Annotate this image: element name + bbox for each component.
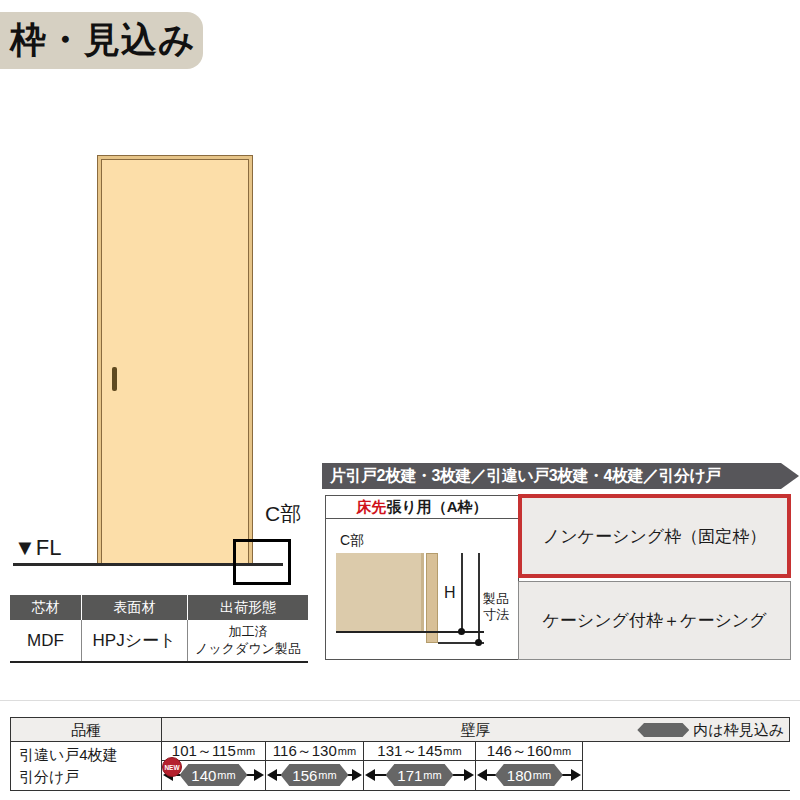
frame-depth-legend: 内は枠見込み	[637, 718, 784, 742]
arrow-left-icon	[267, 769, 277, 781]
page-title-badge: 枠・見込み	[0, 12, 203, 69]
frame-depth-badge: 156mm	[281, 764, 349, 786]
frame-depth-legend-hexagon-icon	[637, 723, 689, 737]
arrow-right-icon	[571, 769, 581, 781]
diagram-wall-section	[336, 553, 424, 632]
dimension-line-h	[461, 553, 463, 632]
header-shipping-form: 出荷形態	[188, 595, 308, 620]
floor-first-frame-cell: 床先張り用（A枠） C部 H 製品 寸法	[325, 495, 519, 660]
core-material-value: MDF	[10, 620, 82, 661]
arrow-right-icon	[464, 769, 474, 781]
c-part-detail-rect	[233, 539, 291, 585]
option-noncasing-frame: ノンケーシング枠（固定枠）	[518, 494, 791, 578]
product-dimension-label: 製品 寸法	[483, 591, 509, 624]
frame-depth-cell: 156mm	[266, 761, 364, 790]
frame-depth-badge: 180mm	[495, 764, 563, 786]
door-handle	[112, 367, 117, 391]
dimension-line-product	[478, 553, 480, 643]
frame-depth-badge: 140mm	[180, 764, 248, 786]
floor-first-highlight: 床先	[356, 498, 386, 517]
frame-depth-cell: 171mm	[364, 761, 476, 790]
floor-level-label: ▼FL	[14, 535, 61, 561]
header-surface-material: 表面材	[82, 595, 188, 620]
arrow-right-icon	[254, 769, 264, 781]
arrow-left-icon	[477, 769, 487, 781]
height-dimension-label: H	[444, 584, 456, 602]
arrow-left-icon	[365, 769, 375, 781]
materials-table-row: MDF HPJシート 加工済 ノックダウン製品	[10, 620, 308, 661]
section-divider	[0, 700, 800, 701]
surface-material-value: HPJシート	[82, 620, 188, 661]
materials-table: 芯材 表面材 出荷形態 MDF HPJシート 加工済 ノックダウン製品	[10, 595, 308, 663]
header-core-material: 芯材	[10, 595, 82, 620]
arrow-right-icon	[352, 769, 362, 781]
diagram-frame-jamb	[426, 553, 438, 643]
wall-range-cell: 146～160mm	[476, 742, 583, 761]
dimension-endpoint-dot-product	[475, 639, 482, 646]
spec-table-header-row: 品種 壁厚 内は枠見込み	[11, 718, 789, 742]
materials-table-header: 芯材 表面材 出荷形態	[10, 595, 308, 620]
product-type-header: 品種	[11, 718, 162, 742]
door-elevation	[97, 155, 253, 564]
floor-first-frame-header: 床先張り用（A枠）	[326, 496, 518, 519]
frame-depth-cell: 180mm	[476, 761, 583, 790]
wall-range-cell: 131～145mm	[364, 742, 476, 761]
wall-range-cell: 116～130mm	[266, 742, 364, 761]
option-noncasing-label: ノンケーシング枠（固定枠）	[543, 525, 766, 548]
dimension-endpoint-dot-h	[458, 628, 465, 635]
page-title: 枠・見込み	[10, 16, 196, 65]
wall-thickness-table: 品種 壁厚 内は枠見込み 引違い戸4枚建 引分け戸 101～115mm 116～…	[10, 717, 790, 791]
option-casing-label: ケーシング付枠＋ケーシング	[542, 609, 766, 632]
product-type-cell: 引違い戸4枚建 引分け戸	[11, 742, 162, 790]
spec-table-empty-cell	[583, 742, 790, 790]
catalog-page: 枠・見込み ▼FL C部 芯材 表面材 出荷形態 MDF HPJシート 加工済 …	[0, 0, 800, 800]
door-panel-face	[101, 159, 249, 563]
new-badge: NEW	[162, 757, 182, 777]
door-type-banner: 片引戸2枚建・3枚建／引違い戸3枚建・4枚建／引分け戸	[322, 463, 799, 489]
frame-depth-legend-label: 内は枠見込み	[693, 721, 784, 740]
shipping-form-value: 加工済 ノックダウン製品	[188, 620, 308, 661]
c-part-label: C部	[265, 500, 301, 528]
frame-depth-badge: 171mm	[386, 764, 454, 786]
door-type-banner-label: 片引戸2枚建・3枚建／引違い戸3枚建・4枚建／引分け戸	[330, 466, 721, 487]
option-casing-frame: ケーシング付枠＋ケーシング	[518, 581, 791, 660]
diagram-c-part-label: C部	[340, 532, 364, 550]
floor-first-rest: 張り用（A枠）	[386, 498, 487, 517]
